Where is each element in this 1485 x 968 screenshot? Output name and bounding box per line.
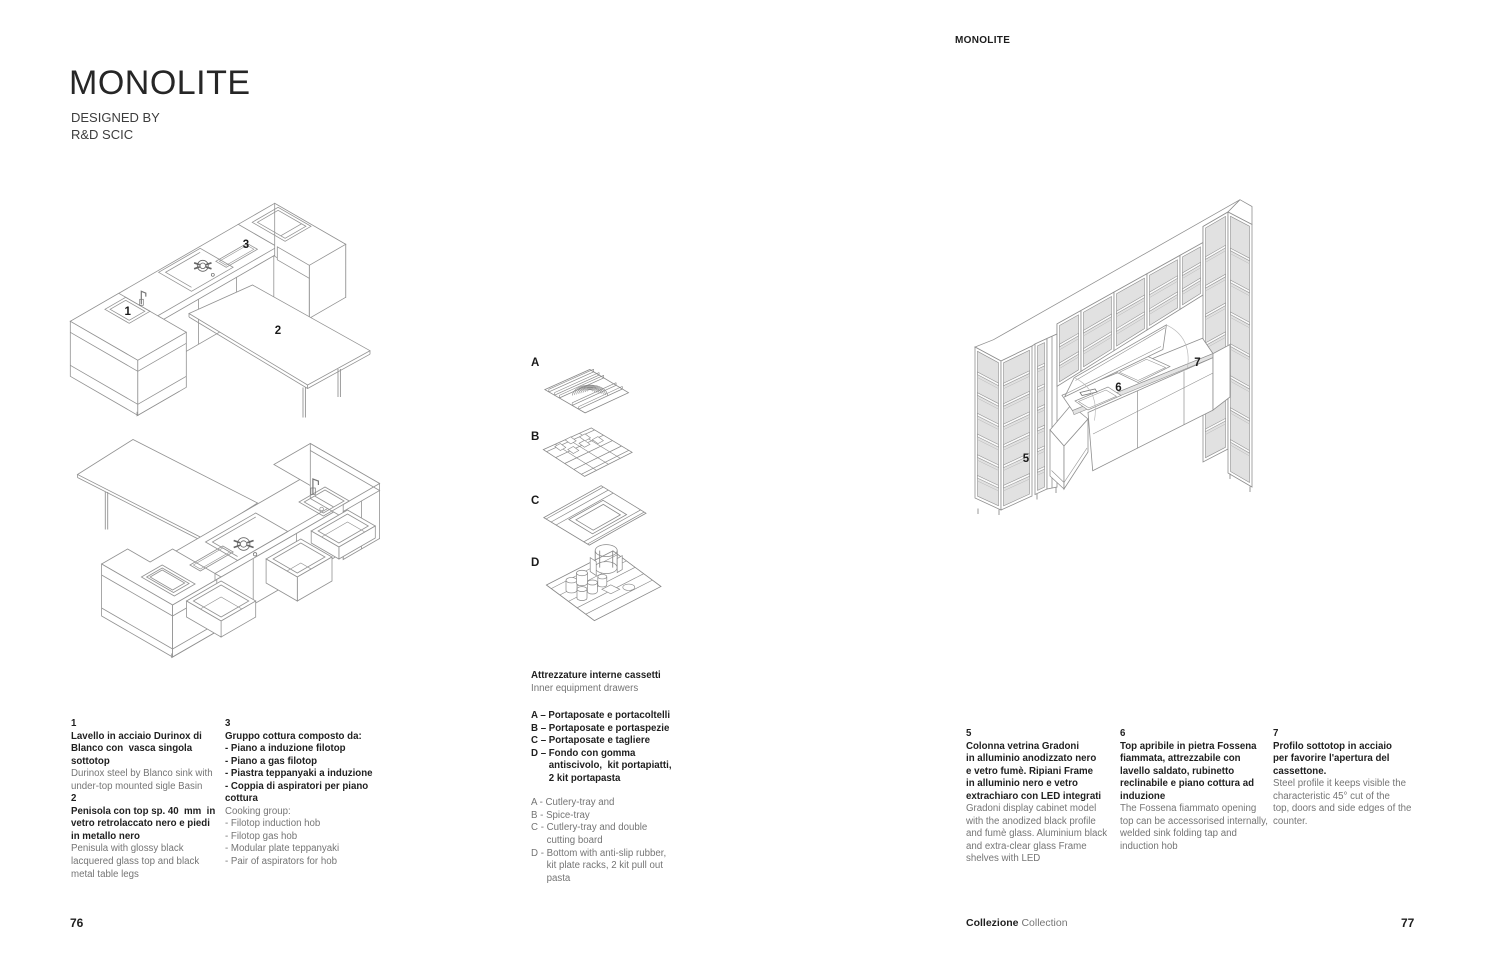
svg-text:D: D (531, 557, 539, 569)
svg-text:6: 6 (1115, 382, 1121, 394)
svg-text:1: 1 (124, 306, 131, 318)
svg-text:2: 2 (275, 325, 281, 337)
svg-text:C: C (531, 495, 539, 507)
svg-text:7: 7 (1194, 357, 1200, 369)
svg-text:5: 5 (1023, 453, 1030, 465)
svg-text:A: A (531, 357, 539, 369)
svg-text:B: B (531, 431, 539, 443)
svg-text:3: 3 (243, 239, 249, 251)
